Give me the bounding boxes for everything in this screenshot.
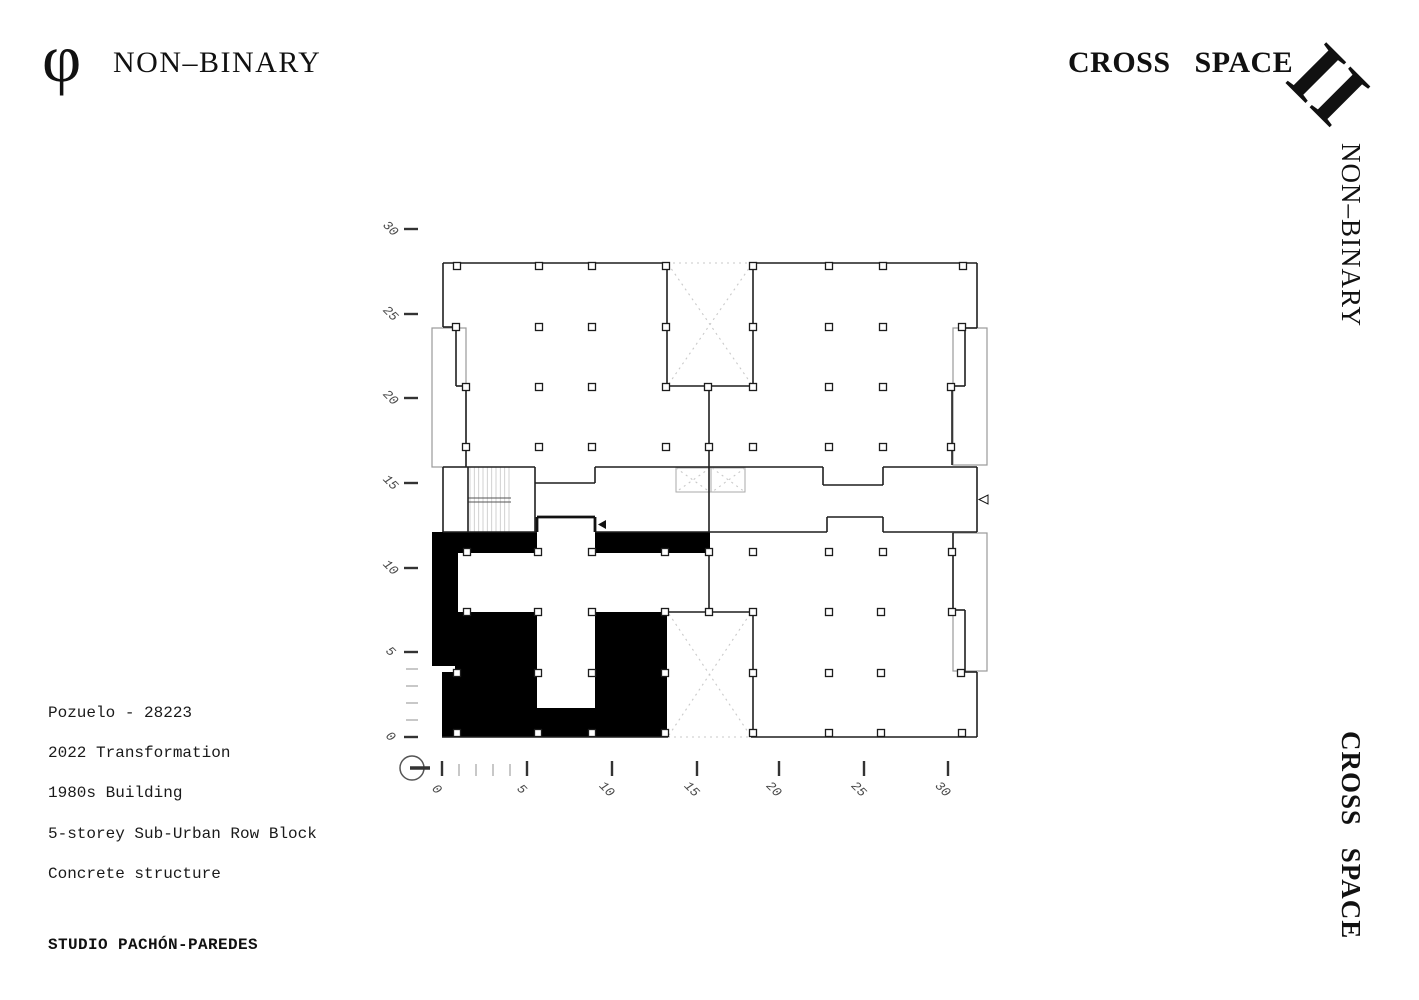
column-marker — [589, 324, 596, 331]
bottom-axis-label: 5 — [514, 781, 530, 797]
column-marker — [454, 670, 461, 677]
bottom-axis-label: 0 — [429, 781, 445, 797]
column-marker — [826, 263, 833, 270]
bottom-axis-label: 15 — [681, 779, 703, 801]
column-marker — [948, 384, 955, 391]
column-marker — [589, 549, 596, 556]
column-marker — [536, 263, 543, 270]
column-marker — [826, 609, 833, 616]
floor-plan-drawing: 302520151050051015202530 — [0, 0, 1419, 1000]
column-marker — [750, 730, 757, 737]
arrow-icon — [979, 495, 988, 504]
column-marker — [662, 609, 669, 616]
left-axis-label: 25 — [380, 303, 402, 325]
column-marker — [589, 730, 596, 737]
column-marker — [706, 444, 713, 451]
column-marker — [705, 384, 712, 391]
left-axis-label: 30 — [380, 218, 402, 240]
left-axis-label: 20 — [380, 387, 402, 409]
elevator-shaft — [676, 468, 745, 492]
column-marker — [536, 384, 543, 391]
column-marker — [949, 549, 956, 556]
column-marker — [750, 263, 757, 270]
column-marker — [454, 730, 461, 737]
column-marker — [464, 549, 471, 556]
column-marker — [880, 444, 887, 451]
column-marker — [750, 549, 757, 556]
left-axis-label: 5 — [382, 644, 398, 660]
column-marker — [880, 263, 887, 270]
column-marker — [535, 549, 542, 556]
column-marker — [662, 549, 669, 556]
bottom-axis-label: 30 — [932, 779, 954, 801]
demolished-dotted-lines — [667, 263, 753, 737]
column-marker — [959, 324, 966, 331]
presentation-sheet: { "page": {"width": 1419, "height": 1000… — [0, 0, 1419, 1000]
bottom-axis-scale: 051015202530 — [429, 761, 954, 800]
column-marker — [535, 670, 542, 677]
column-marker — [662, 670, 669, 677]
column-marker — [535, 730, 542, 737]
column-marker — [826, 670, 833, 677]
column-marker — [878, 670, 885, 677]
left-axis-label: 10 — [380, 557, 402, 579]
column-marker — [663, 444, 670, 451]
column-marker — [589, 670, 596, 677]
column-marker — [878, 609, 885, 616]
column-marker — [750, 324, 757, 331]
column-marker — [948, 444, 955, 451]
column-marker — [662, 730, 669, 737]
column-marker — [663, 263, 670, 270]
transformed-area-fills — [432, 532, 710, 737]
column-marker — [826, 384, 833, 391]
column-marker — [750, 384, 757, 391]
column-marker — [589, 384, 596, 391]
column-marker — [464, 609, 471, 616]
column-marker — [750, 670, 757, 677]
left-axis-label: 0 — [382, 729, 398, 745]
column-marker — [463, 384, 470, 391]
column-marker — [535, 609, 542, 616]
column-marker — [826, 444, 833, 451]
bottom-axis-label: 25 — [848, 779, 870, 801]
column-marker — [536, 324, 543, 331]
column-marker — [589, 444, 596, 451]
bottom-axis-label: 20 — [763, 779, 785, 801]
column-marker — [750, 444, 757, 451]
column-marker — [960, 263, 967, 270]
north-symbol-icon — [400, 756, 430, 780]
column-marker — [826, 324, 833, 331]
column-marker — [958, 670, 965, 677]
column-marker — [589, 609, 596, 616]
column-marker — [706, 549, 713, 556]
column-marker — [878, 730, 885, 737]
column-marker — [453, 324, 460, 331]
column-marker — [536, 444, 543, 451]
column-marker — [826, 730, 833, 737]
column-marker — [880, 384, 887, 391]
column-marker — [826, 549, 833, 556]
column-marker — [880, 324, 887, 331]
column-marker — [949, 609, 956, 616]
bottom-axis-label: 10 — [596, 779, 618, 801]
column-marker — [663, 324, 670, 331]
arrow-icon — [598, 520, 606, 529]
column-marker — [706, 609, 713, 616]
column-marker — [880, 549, 887, 556]
staircase — [468, 467, 511, 532]
door-arrows — [598, 495, 988, 529]
column-marker — [463, 444, 470, 451]
column-marker — [663, 384, 670, 391]
column-marker — [750, 609, 757, 616]
column-marker — [959, 730, 966, 737]
column-marker — [454, 263, 461, 270]
column-marker — [589, 263, 596, 270]
left-axis-label: 15 — [380, 472, 402, 494]
left-axis-scale: 302520151050 — [380, 218, 418, 745]
